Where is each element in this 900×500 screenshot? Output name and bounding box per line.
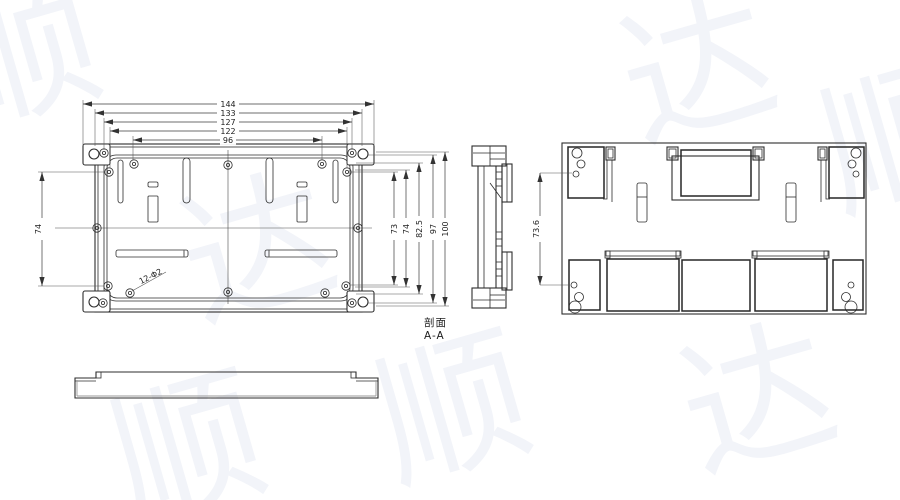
watermark-char: 顺 <box>92 346 284 500</box>
dim-width-133: 133 <box>217 109 239 119</box>
cad-drawing-page: 顺 达 顺 达 顺 达 顺 <box>0 0 900 500</box>
svg-text:97: 97 <box>429 224 438 234</box>
svg-text:100: 100 <box>441 221 450 236</box>
svg-text:127: 127 <box>220 118 235 127</box>
back-dimension: 73.6 <box>532 173 573 285</box>
dim-width-144: 144 <box>217 100 239 110</box>
svg-text:74: 74 <box>34 224 43 234</box>
svg-text:133: 133 <box>220 109 235 118</box>
svg-text:74: 74 <box>402 224 411 234</box>
dim-right-100: 100 <box>441 218 451 240</box>
dim-width-96: 96 <box>220 136 236 146</box>
dim-width-127: 127 <box>217 118 239 128</box>
dim-right-82-5: 82.5 <box>415 216 425 242</box>
svg-text:122: 122 <box>220 127 235 136</box>
right-dimensions: 73 74 82.5 97 100 <box>350 152 450 306</box>
dim-right-74: 74 <box>402 218 412 240</box>
svg-text:73: 73 <box>390 224 399 234</box>
back-view: 73.6 <box>532 143 867 314</box>
svg-text:82.5: 82.5 <box>415 220 424 238</box>
left-dimension: 74 <box>34 172 106 286</box>
watermark-char: 顺 <box>357 306 549 500</box>
svg-text:144: 144 <box>220 100 235 109</box>
dim-right-73: 73 <box>390 218 400 240</box>
watermark-char: 达 <box>602 0 794 175</box>
section-label-title: 剖面 <box>424 316 447 329</box>
section-label-name: A-A <box>424 330 445 342</box>
watermark-char: 顺 <box>0 0 119 160</box>
svg-text:73.6: 73.6 <box>532 220 541 238</box>
hole-callout: 12-Φ2 <box>132 267 166 291</box>
dim-left-74: 74 <box>34 218 44 240</box>
compartment <box>569 260 600 310</box>
back-slot <box>786 183 796 222</box>
dim-back-73-6: 73.6 <box>532 216 542 242</box>
compartment <box>607 259 679 311</box>
dim-right-97: 97 <box>429 218 439 240</box>
compartment <box>682 260 750 311</box>
watermark-char: 达 <box>662 296 854 500</box>
svg-text:96: 96 <box>223 136 233 145</box>
hole-callout-label: 12-Φ2 <box>138 267 164 286</box>
back-slot <box>637 183 647 222</box>
watermark-char: 顺 <box>802 36 900 245</box>
drawing-canvas: 顺 达 顺 达 顺 达 顺 <box>0 0 900 500</box>
dim-width-122: 122 <box>217 127 239 137</box>
